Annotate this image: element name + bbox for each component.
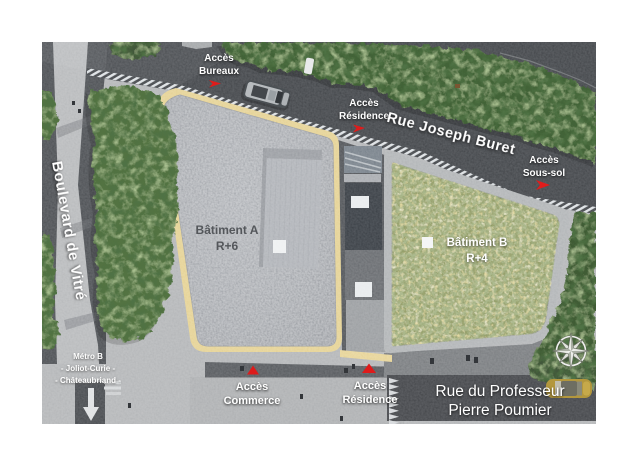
svg-text:Résidence: Résidence — [339, 111, 389, 122]
svg-text:Sous-sol: Sous-sol — [523, 168, 565, 179]
svg-text:Rue du Professeur: Rue du Professeur — [435, 383, 564, 400]
svg-text:Bureaux: Bureaux — [199, 66, 239, 77]
svg-text:Accès: Accès — [529, 155, 559, 166]
svg-text:Résidence: Résidence — [342, 394, 397, 406]
svg-text:Commerce: Commerce — [224, 395, 281, 407]
svg-text:Bâtiment B: Bâtiment B — [447, 237, 508, 249]
svg-text:Accès: Accès — [349, 98, 379, 109]
svg-text:Pierre Poumier: Pierre Poumier — [448, 402, 551, 419]
svg-text:Bâtiment A: Bâtiment A — [196, 223, 259, 237]
svg-text:R+6: R+6 — [216, 239, 239, 253]
svg-text:R+4: R+4 — [466, 253, 488, 265]
svg-text:Accès: Accès — [354, 380, 386, 392]
svg-text:Accès: Accès — [236, 381, 268, 393]
svg-text:- Châteaubriand -: - Châteaubriand - — [55, 376, 121, 385]
svg-text:Métro B: Métro B — [73, 352, 103, 361]
svg-text:Accès: Accès — [204, 53, 234, 64]
svg-text:- Joliot-Curie -: - Joliot-Curie - — [61, 364, 116, 373]
